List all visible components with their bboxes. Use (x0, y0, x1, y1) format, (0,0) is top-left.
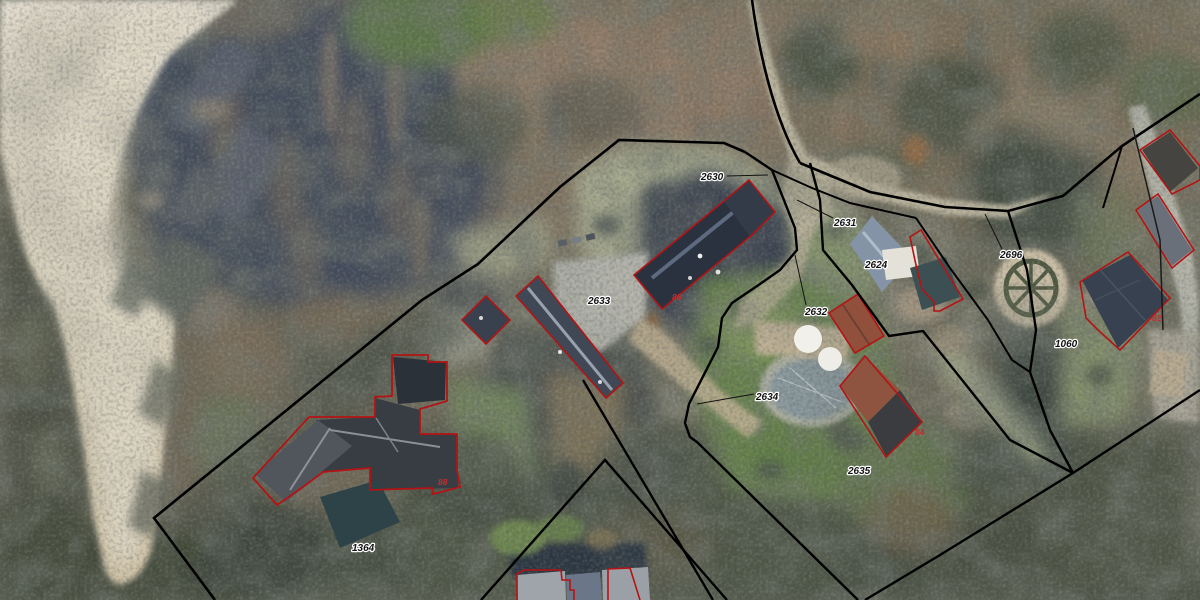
svg-text:2635: 2635 (847, 466, 871, 477)
svg-text:2630: 2630 (700, 172, 724, 183)
svg-text:2634: 2634 (755, 392, 779, 403)
svg-text:88: 88 (438, 477, 448, 487)
svg-text:1364: 1364 (352, 543, 375, 554)
svg-text:86: 86 (672, 292, 682, 302)
svg-text:2624: 2624 (864, 260, 888, 271)
svg-text:2696: 2696 (999, 250, 1023, 261)
svg-text:84: 84 (915, 427, 925, 437)
svg-text:2632: 2632 (804, 307, 828, 318)
svg-text:82: 82 (1152, 313, 1162, 323)
svg-text:1060: 1060 (1055, 339, 1078, 350)
svg-text:2631: 2631 (833, 218, 857, 229)
svg-text:2633: 2633 (587, 296, 611, 307)
